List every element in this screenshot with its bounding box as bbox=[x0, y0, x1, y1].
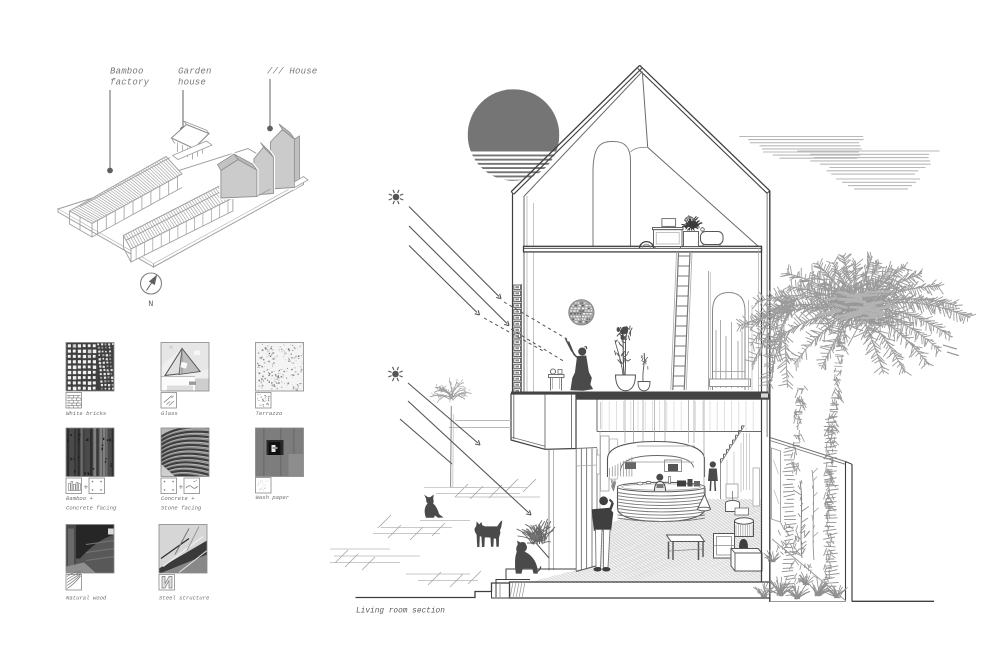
svg-text:Concrete +: Concrete + bbox=[161, 495, 195, 502]
svg-text:factory: factory bbox=[110, 78, 150, 88]
svg-text:Natural wood: Natural wood bbox=[66, 595, 107, 602]
svg-text:White bricks: White bricks bbox=[66, 410, 106, 417]
svg-text:Glass: Glass bbox=[161, 410, 178, 417]
svg-text:Living room section: Living room section bbox=[356, 608, 445, 616]
svg-text:Bamboo: Bamboo bbox=[110, 67, 144, 77]
svg-text:Stone facing: Stone facing bbox=[161, 505, 202, 512]
svg-text:N: N bbox=[148, 299, 154, 309]
svg-text:Concrete facing: Concrete facing bbox=[66, 505, 117, 512]
svg-text:Garden: Garden bbox=[178, 67, 212, 77]
svg-text:+: + bbox=[179, 484, 184, 493]
svg-text:Wash paper: Wash paper bbox=[256, 494, 290, 501]
svg-text:Terrazzo: Terrazzo bbox=[256, 410, 283, 417]
svg-text:Steel structure: Steel structure bbox=[159, 595, 210, 602]
svg-text:Bamboo +: Bamboo + bbox=[66, 495, 93, 502]
svg-text:house: house bbox=[178, 78, 206, 88]
svg-text:+: + bbox=[84, 484, 89, 493]
svg-text:/// House: /// House bbox=[267, 67, 317, 77]
